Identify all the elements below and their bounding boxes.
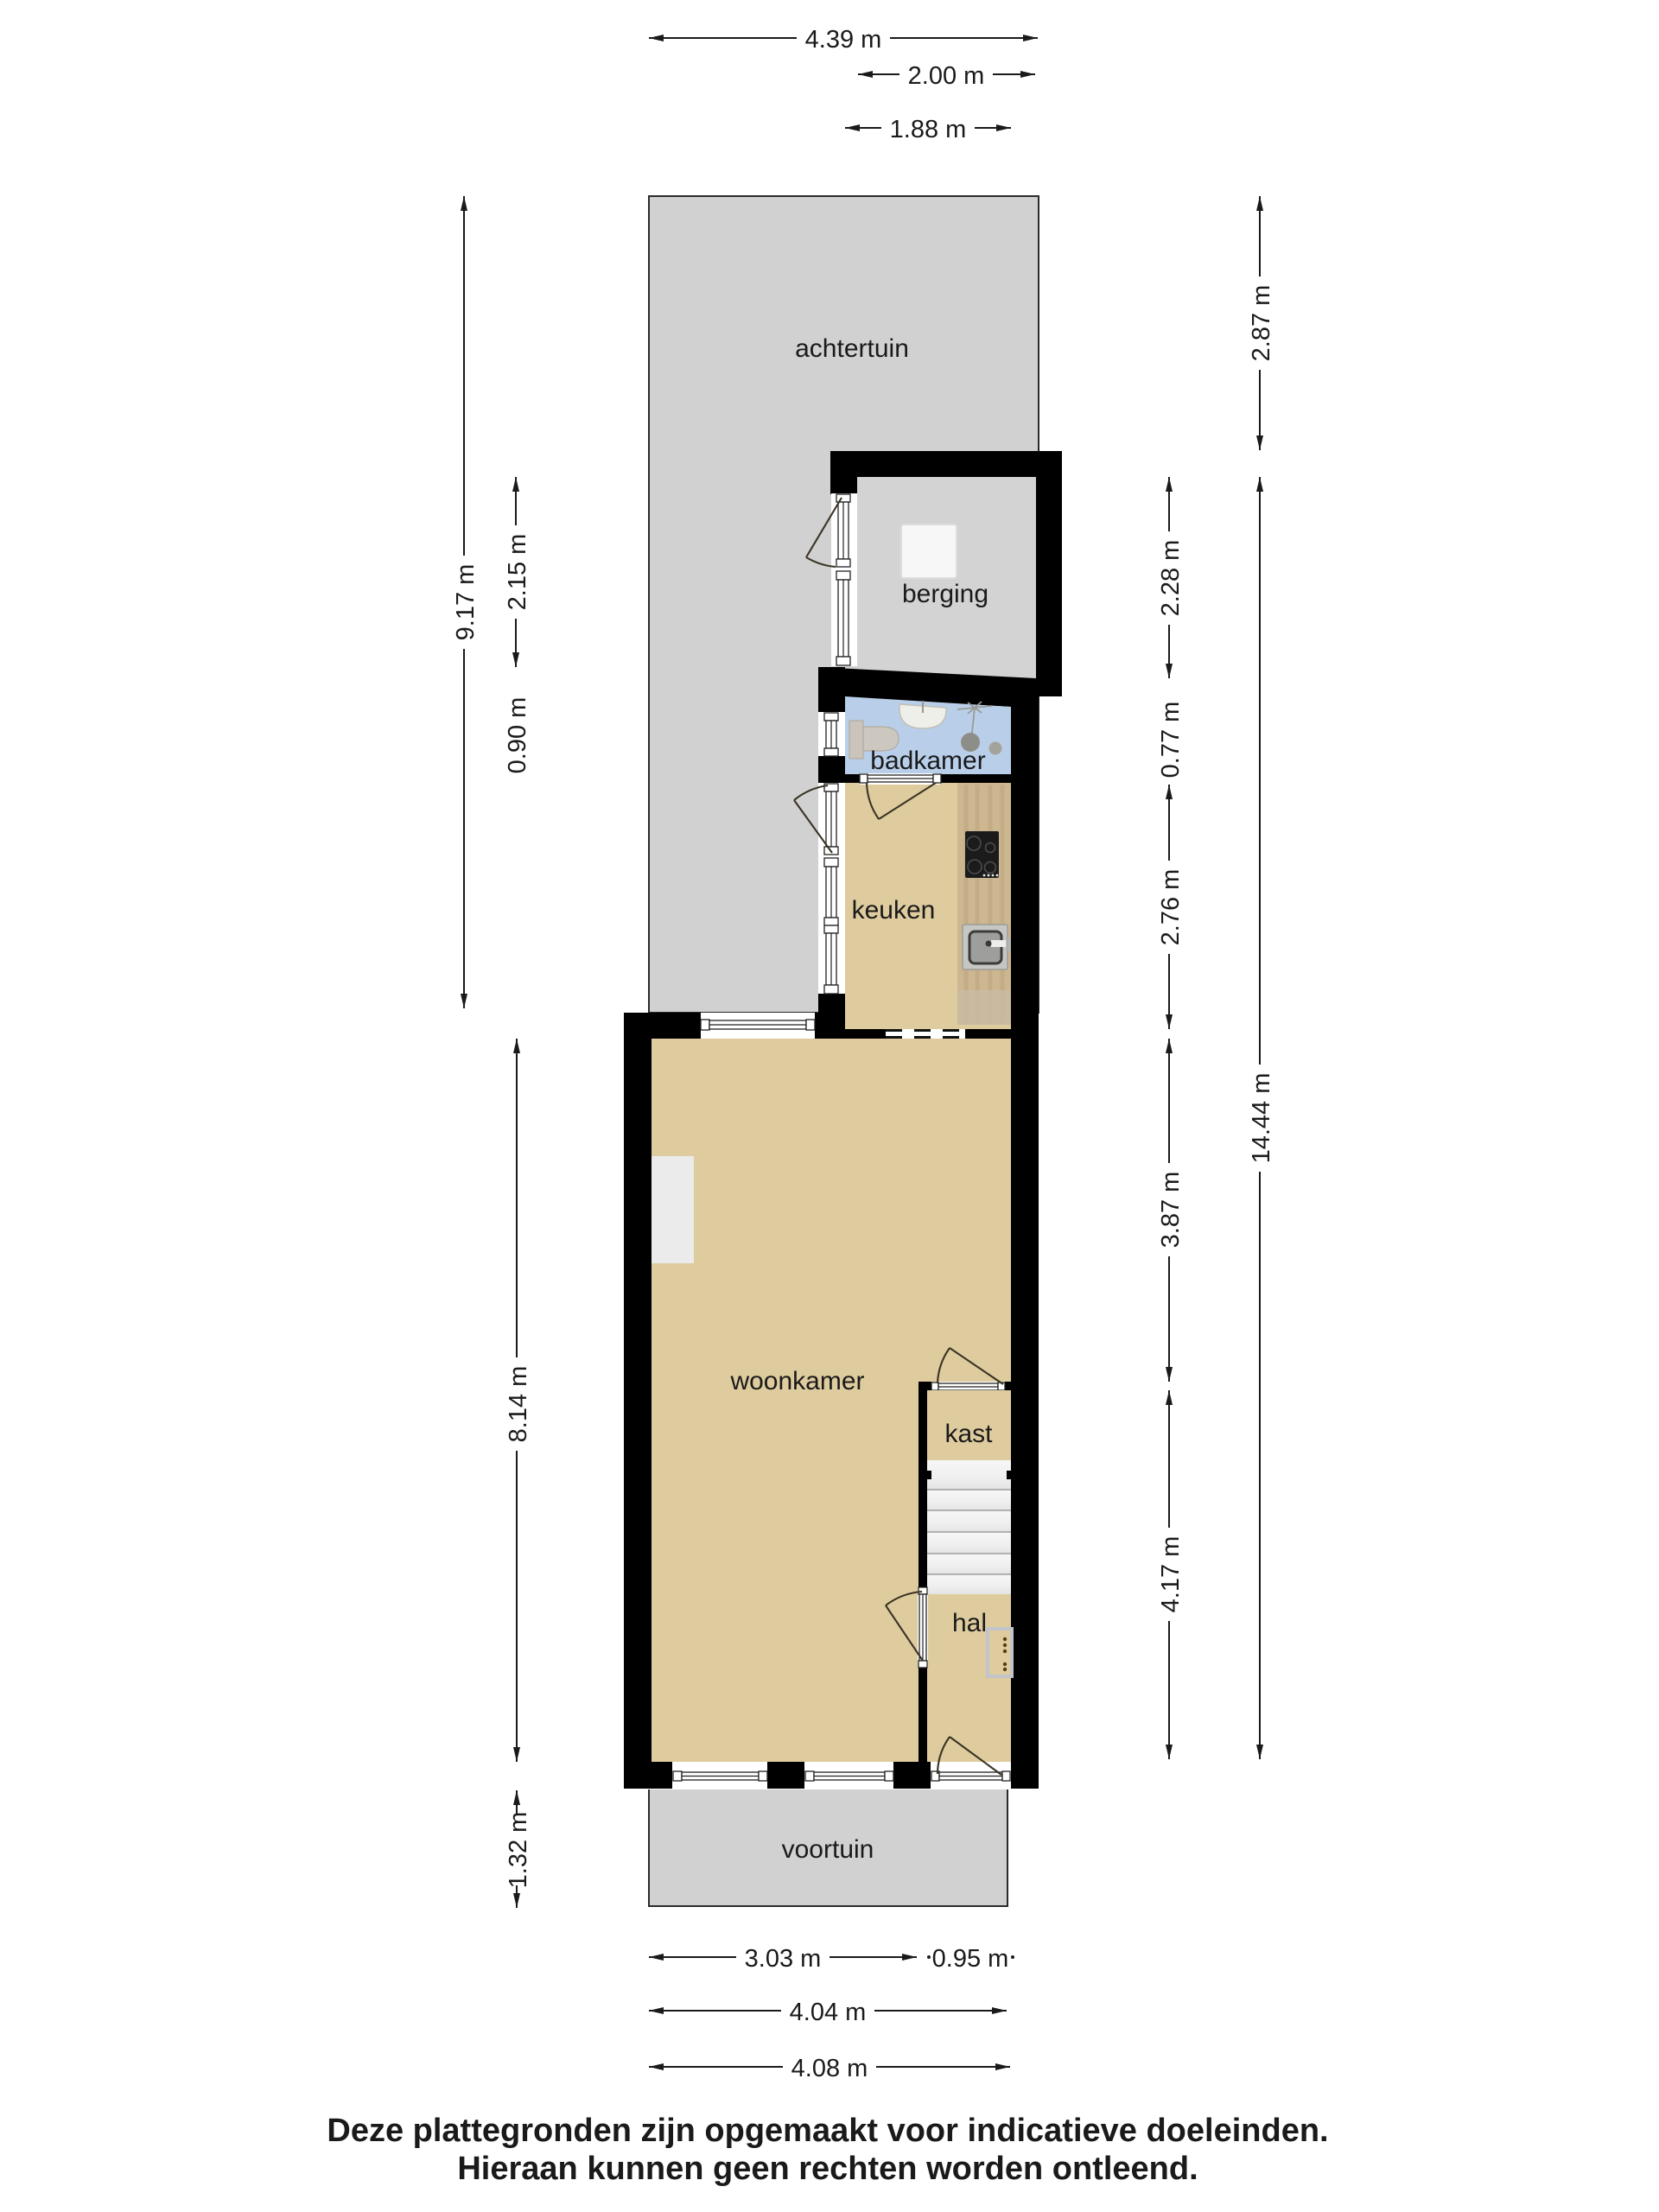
svg-text:0.77 m: 0.77 m [1157, 702, 1185, 779]
svg-text:2.87 m: 2.87 m [1248, 285, 1275, 362]
svg-text:8.14 m: 8.14 m [505, 1366, 532, 1443]
svg-text:4.39 m: 4.39 m [805, 26, 882, 54]
svg-text:1.88 m: 1.88 m [890, 116, 967, 143]
svg-text:hal: hal [952, 1609, 987, 1637]
svg-text:badkamer: badkamer [870, 747, 985, 775]
svg-text:2.28 m: 2.28 m [1157, 540, 1185, 617]
svg-text:voortuin: voortuin [782, 1835, 874, 1864]
svg-text:9.17 m: 9.17 m [452, 564, 480, 641]
svg-text:0.95 m: 0.95 m [932, 1945, 1009, 1973]
svg-text:3.87 m: 3.87 m [1157, 1172, 1185, 1249]
svg-text:0.90 m: 0.90 m [504, 697, 531, 774]
svg-text:achtertuin: achtertuin [795, 334, 909, 363]
svg-text:4.08 m: 4.08 m [791, 2055, 868, 2082]
svg-text:3.03 m: 3.03 m [745, 1945, 822, 1973]
svg-text:keuken: keuken [852, 896, 936, 925]
svg-text:Deze plattegronden zijn opgema: Deze plattegronden zijn opgemaakt voor i… [327, 2113, 1328, 2149]
svg-text:2.76 m: 2.76 m [1157, 869, 1185, 946]
svg-text:2.15 m: 2.15 m [504, 534, 531, 611]
svg-text:1.32 m: 1.32 m [505, 1812, 532, 1889]
svg-text:woonkamer: woonkamer [729, 1367, 864, 1395]
svg-text:4.17 m: 4.17 m [1157, 1536, 1185, 1613]
svg-text:14.44 m: 14.44 m [1248, 1073, 1275, 1164]
svg-text:Hieraan kunnen geen rechten wo: Hieraan kunnen geen rechten worden ontle… [457, 2151, 1198, 2187]
svg-text:2.00 m: 2.00 m [908, 62, 985, 90]
svg-text:berging: berging [902, 580, 988, 608]
svg-text:4.04 m: 4.04 m [790, 1999, 867, 2026]
svg-text:kast: kast [944, 1420, 993, 1448]
